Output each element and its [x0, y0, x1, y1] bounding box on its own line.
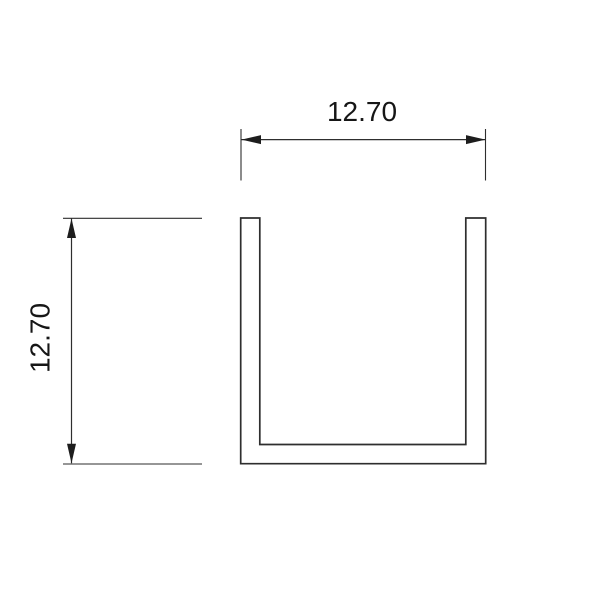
svg-text:12.70: 12.70 — [327, 96, 397, 127]
svg-text:12.70: 12.70 — [25, 303, 56, 373]
